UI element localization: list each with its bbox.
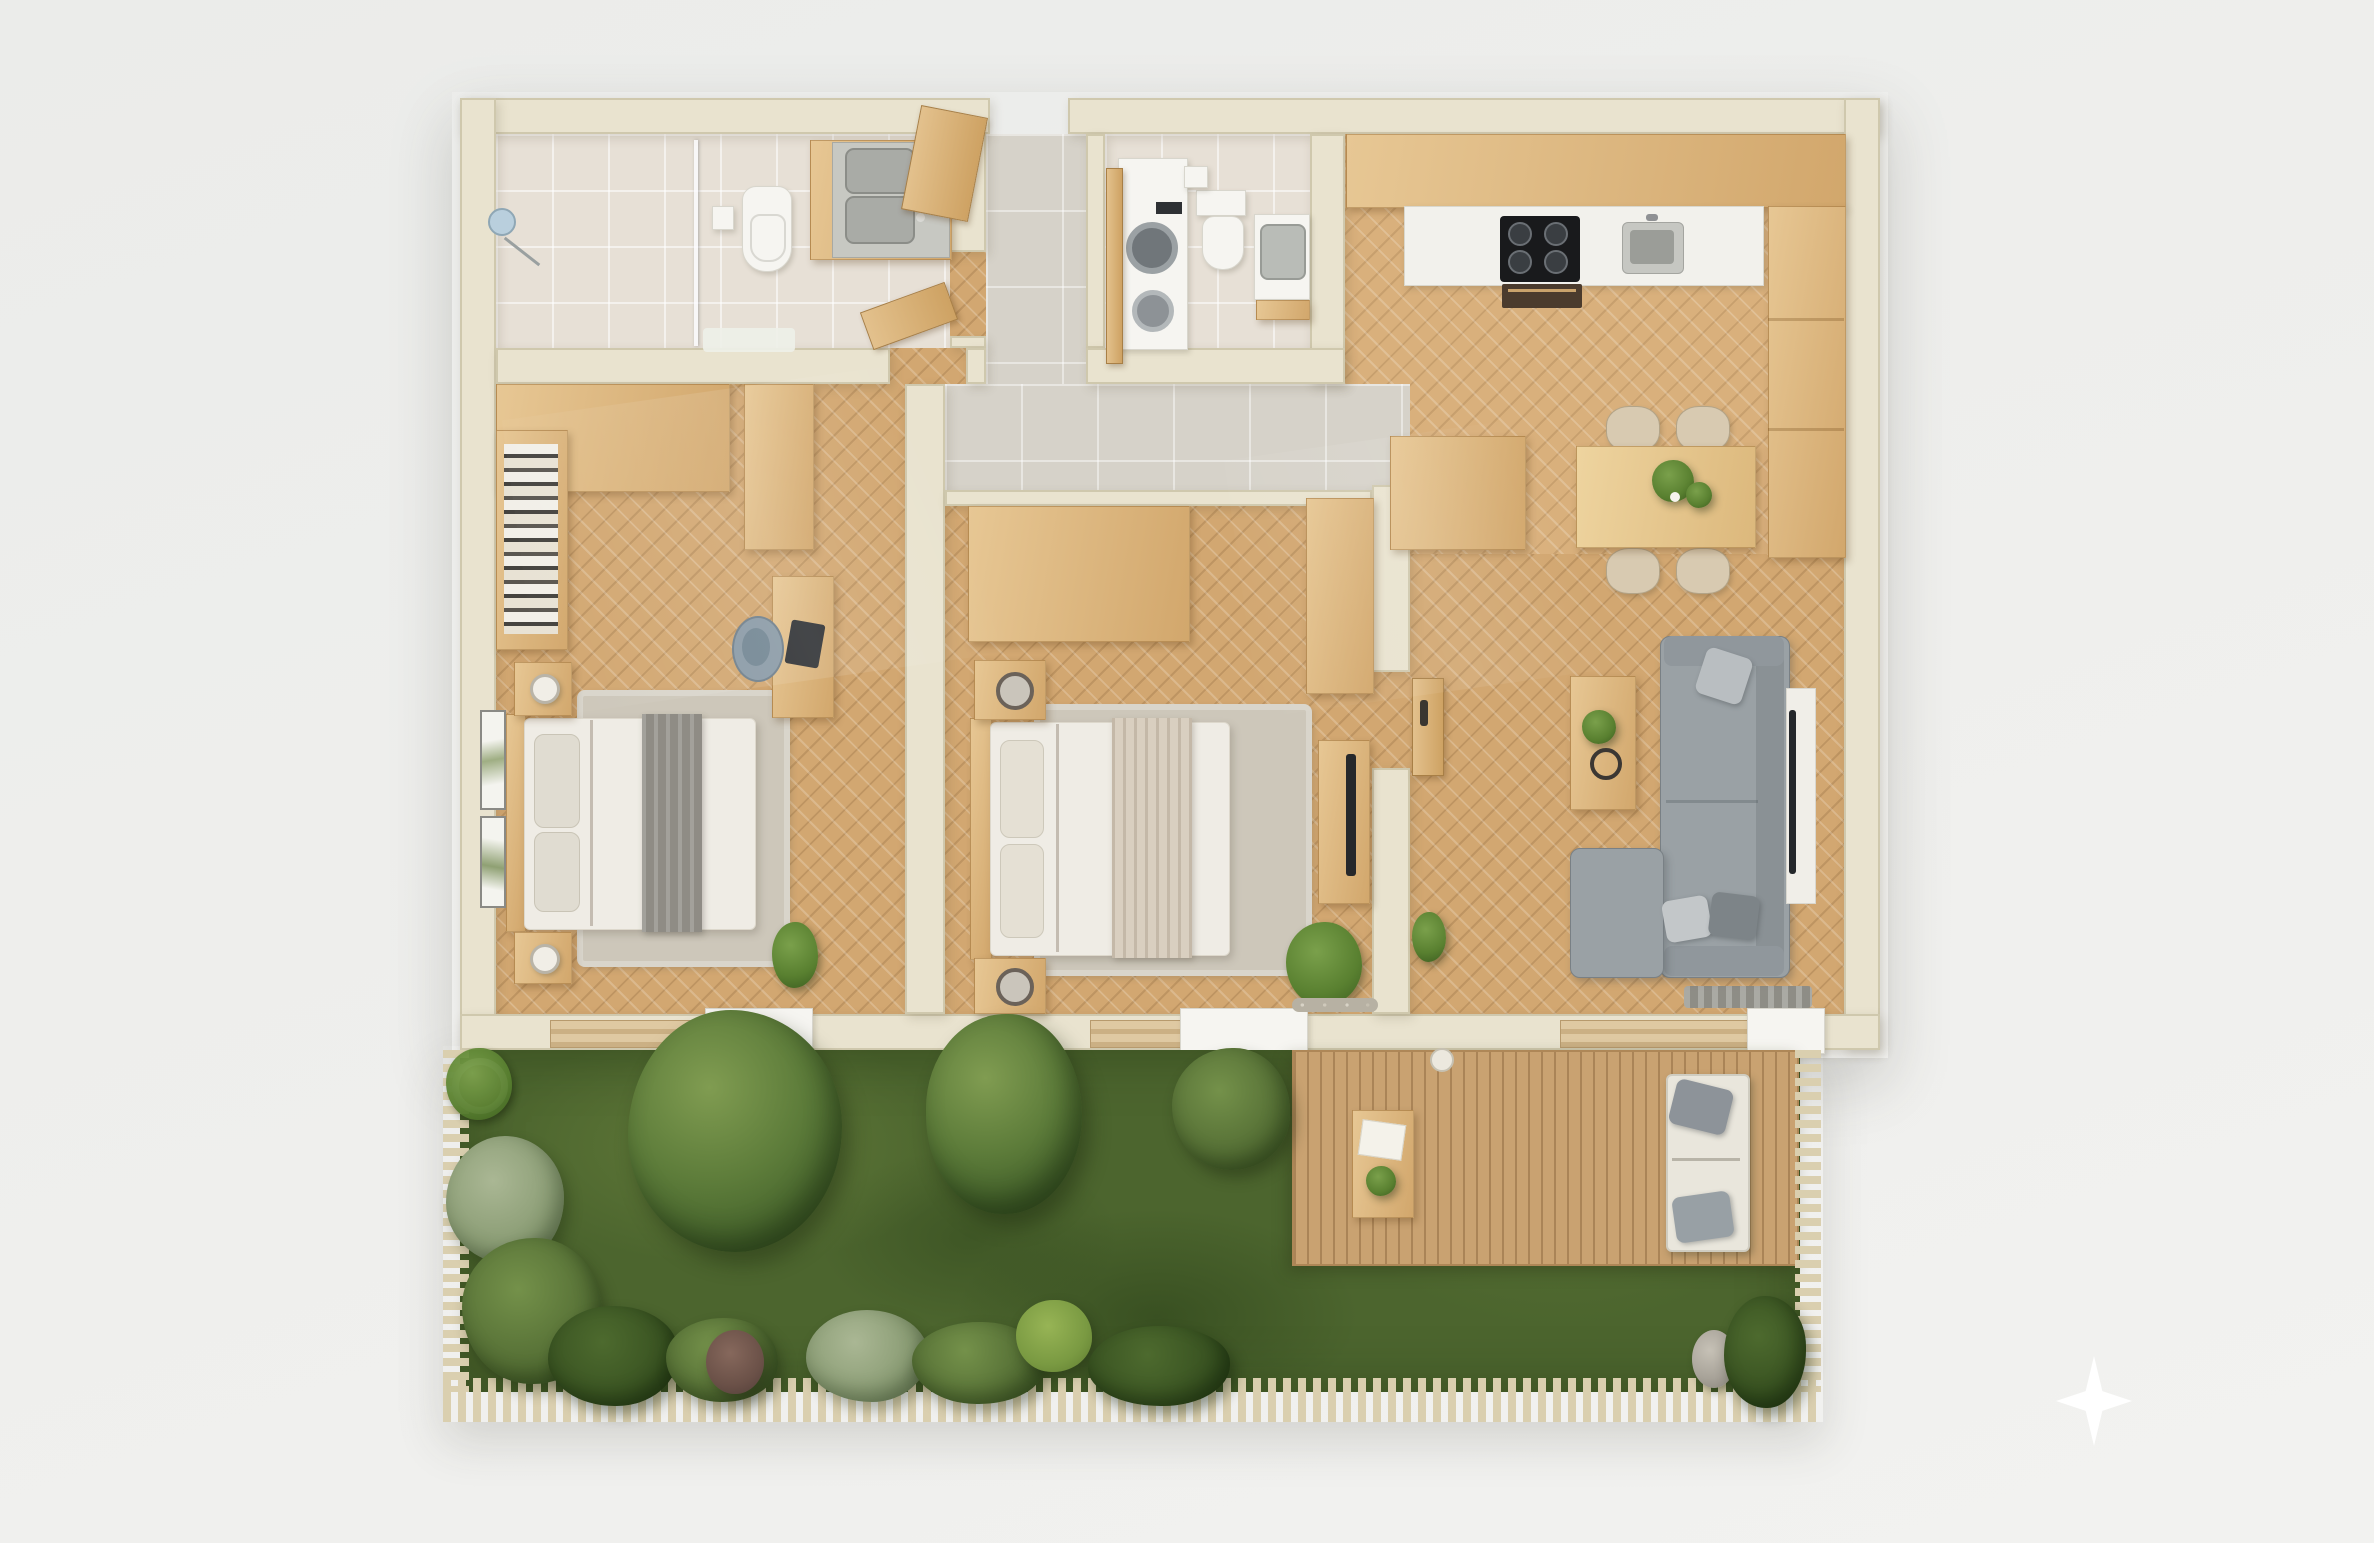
bed2-pillow-2 (1000, 844, 1044, 938)
toilet-seat-line (750, 214, 786, 262)
bedroom2-pebble-strip (1292, 998, 1378, 1012)
sliding-door-threshold-bedroom2 (1090, 1020, 1184, 1048)
nightstand2-vase-bottom (996, 968, 1034, 1006)
coffee-table-tray (1590, 748, 1622, 780)
washer-drum (1126, 222, 1178, 274)
wall-bedroom2-living-lower (1372, 768, 1410, 1014)
wall-top-right (1068, 98, 1880, 134)
palm-plant (1724, 1296, 1806, 1408)
sofa-armrest-bottom (1664, 946, 1784, 976)
kitchen-countertop (1404, 206, 1764, 286)
sofa-seat-divider (1666, 800, 1758, 803)
wall-under-wc (1086, 348, 1345, 384)
bedroom1-plant (772, 922, 818, 988)
bed1-headboard (506, 714, 526, 932)
burner-3 (1508, 250, 1532, 274)
garden-bush-by-deck (1172, 1048, 1290, 1170)
oven-handle (1508, 289, 1576, 292)
dining-table-pot (1670, 492, 1680, 502)
bed2-pillow-1 (1000, 740, 1044, 838)
coffee-table-plant (1582, 710, 1616, 744)
bed1-throw-blanket (642, 714, 702, 932)
bath-mat (703, 328, 795, 352)
bed2-sheet-fold (1056, 724, 1059, 952)
wall-pillar-2 (1180, 1008, 1308, 1054)
wall-wc-right (1310, 134, 1345, 384)
dryer-drum (1132, 290, 1174, 332)
burner-2 (1544, 222, 1568, 246)
wc-door-leaf (1106, 168, 1123, 364)
tall-cabinet-divider-2 (1768, 428, 1844, 431)
bedroom2-plant (1286, 922, 1362, 1006)
faucet-2 (916, 213, 925, 222)
wc-toilet (1202, 216, 1244, 270)
tall-cabinet-divider-1 (1768, 318, 1844, 321)
outdoor-sofa-pillow-2 (1671, 1190, 1735, 1244)
outdoor-table-plant (1366, 1166, 1396, 1196)
bed1-sheet-fold (590, 720, 593, 926)
sliding-door-threshold-living (1560, 1020, 1757, 1048)
kitchen-tall-cabinets (1768, 206, 1846, 558)
nightstand-lamp-bottom (530, 944, 560, 974)
garden-purple-plant (706, 1330, 764, 1394)
sofa-back-cushions (1756, 652, 1784, 962)
dining-table-plant-leaf (1686, 482, 1712, 508)
bed1-pillow-2 (534, 832, 580, 912)
wc-cistern (1196, 190, 1246, 216)
bedroom2-tv (1346, 754, 1356, 876)
sofa-pillow-3 (1707, 891, 1760, 941)
burner-1 (1508, 222, 1532, 246)
garden-shrub-bottom-2 (806, 1310, 928, 1402)
sparkle-watermark-icon (2056, 1356, 2132, 1446)
wall-pillar-3 (1747, 1008, 1825, 1054)
washbasin-shelf (1256, 300, 1310, 320)
garden-tree-2 (926, 1014, 1082, 1214)
washer-control-panel (1156, 202, 1182, 214)
bed1-pillow-1 (534, 734, 580, 828)
bedroom1-wall-art-2 (480, 816, 506, 908)
garden-shrub-left-3 (548, 1306, 678, 1406)
sofa-chaise-section (1570, 848, 1664, 978)
bed2-headboard (970, 718, 992, 960)
kitchen-faucet (1646, 214, 1658, 221)
kitchen-upper-cabinets (1346, 134, 1846, 208)
toilet-paper-holder (712, 206, 734, 230)
deck-edge-pot (1430, 1048, 1454, 1072)
wall-right (1844, 98, 1880, 1050)
burner-4 (1544, 250, 1568, 274)
shower-glass-partition (694, 140, 698, 346)
agave-plant (446, 1048, 512, 1120)
wc-paper-holder (1184, 166, 1208, 188)
tv-screen (1789, 710, 1796, 874)
living-door-mat (1684, 986, 1812, 1008)
bedroom2-door-handle (1420, 700, 1428, 726)
floor-plan-scene (0, 0, 2374, 1543)
kitchen-sink-basin (1630, 230, 1674, 264)
bedroom2-media-dresser (1318, 740, 1370, 904)
shower-head-icon (488, 208, 516, 236)
outdoor-sofa-cushion-line (1672, 1158, 1740, 1161)
bed2-throw-blanket (1112, 718, 1192, 958)
oven-front (1502, 284, 1582, 308)
dining-chair-4 (1676, 548, 1730, 594)
sofa-pillow-2 (1661, 894, 1714, 943)
wall-top-left (460, 98, 990, 134)
wall-bathroom-hall-stub (950, 336, 986, 348)
outdoor-table-tray (1358, 1119, 1407, 1161)
hall-floor-plant (1412, 912, 1446, 962)
wall-wc-left (1086, 134, 1105, 348)
garden-tree-large (628, 1010, 842, 1252)
nightstand2-vase-top (996, 672, 1034, 710)
bedroom1-wall-art-1 (480, 710, 506, 810)
garden-shrub-bottom-4 (1088, 1326, 1230, 1406)
garden-moss-mound (1016, 1300, 1092, 1372)
corner-washbasin-bowl (1260, 224, 1306, 280)
